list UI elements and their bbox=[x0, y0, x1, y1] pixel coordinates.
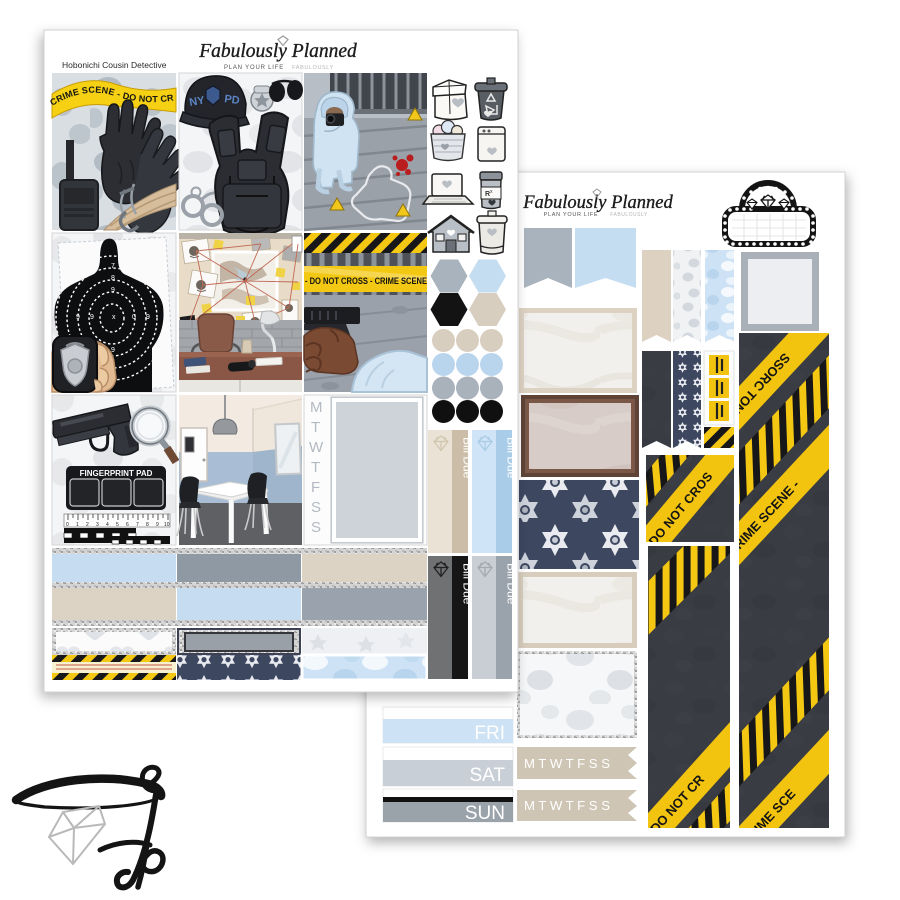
svg-text:T: T bbox=[311, 419, 320, 436]
svg-text:x: x bbox=[112, 314, 116, 321]
svg-text:0: 0 bbox=[132, 314, 136, 321]
svg-text:7: 7 bbox=[111, 263, 115, 270]
svg-text:0: 0 bbox=[66, 522, 69, 528]
svg-text:W: W bbox=[309, 439, 324, 456]
svg-text:10: 10 bbox=[164, 522, 170, 528]
svg-text:4: 4 bbox=[106, 522, 109, 528]
svg-text:S: S bbox=[311, 519, 321, 536]
svg-text:Fabulously Planned: Fabulously Planned bbox=[198, 41, 357, 62]
svg-text:9: 9 bbox=[90, 314, 94, 321]
svg-text:Hobonichi Cousin Detective: Hobonichi Cousin Detective bbox=[62, 60, 167, 70]
svg-text:FRI: FRI bbox=[474, 723, 505, 744]
svg-text:1: 1 bbox=[76, 522, 79, 528]
svg-text:5: 5 bbox=[116, 522, 119, 528]
svg-text:PD: PD bbox=[224, 93, 241, 107]
svg-text:T: T bbox=[311, 459, 320, 476]
svg-text:SAT: SAT bbox=[469, 765, 505, 786]
svg-text:9: 9 bbox=[146, 314, 150, 321]
svg-text:SUN: SUN bbox=[465, 803, 505, 824]
svg-text:2: 2 bbox=[86, 522, 89, 528]
svg-text:9: 9 bbox=[111, 287, 115, 294]
svg-text:- DO NOT CROSS - CRIME SCENE: - DO NOT CROSS - CRIME SCENE bbox=[305, 276, 427, 287]
svg-text:M T W T F S S: M T W T F S S bbox=[524, 756, 610, 771]
svg-text:PLAN YOUR LIFE: PLAN YOUR LIFE bbox=[224, 65, 284, 71]
svg-text:FINGERPRINT PAD: FINGERPRINT PAD bbox=[80, 469, 153, 478]
svg-text:8: 8 bbox=[146, 522, 149, 528]
svg-text:9: 9 bbox=[76, 314, 80, 321]
svg-text:FABULOUSLY: FABULOUSLY bbox=[292, 65, 334, 71]
svg-text:F: F bbox=[311, 479, 320, 496]
svg-text:PLAN YOUR LIFE: PLAN YOUR LIFE bbox=[544, 212, 599, 218]
svg-text:7: 7 bbox=[136, 522, 139, 528]
svg-text:3: 3 bbox=[96, 522, 99, 528]
svg-text:S: S bbox=[311, 499, 321, 516]
svg-text:9: 9 bbox=[156, 522, 159, 528]
svg-text:Bill Due: Bill Due bbox=[505, 563, 519, 605]
svg-text:M T W T F S S: M T W T F S S bbox=[524, 798, 610, 813]
svg-text:M: M bbox=[310, 399, 323, 416]
svg-text:FABULOUSLY: FABULOUSLY bbox=[610, 212, 648, 218]
svg-text:6: 6 bbox=[126, 522, 129, 528]
svg-text:8: 8 bbox=[111, 275, 115, 282]
svg-text:Bill Due: Bill Due bbox=[505, 437, 519, 479]
